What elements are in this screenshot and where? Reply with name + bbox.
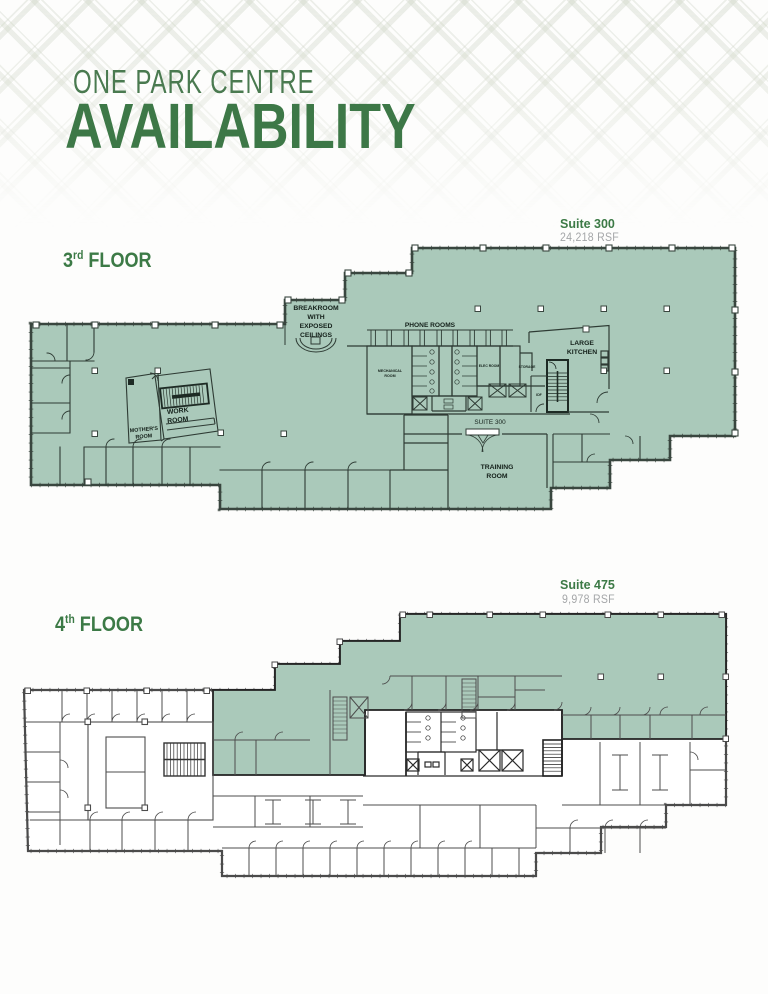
svg-text:LARGE: LARGE — [570, 340, 594, 347]
svg-text:ROOM: ROOM — [486, 473, 507, 480]
svg-text:IDF: IDF — [536, 393, 541, 397]
svg-text:ELEC ROOM: ELEC ROOM — [479, 364, 500, 368]
svg-text:TRAINING: TRAINING — [481, 464, 514, 471]
svg-text:PHONE ROOMS: PHONE ROOMS — [405, 322, 456, 329]
svg-text:WITH: WITH — [307, 314, 324, 321]
svg-text:STORAGE: STORAGE — [519, 365, 536, 369]
svg-text:SUITE 300: SUITE 300 — [474, 419, 506, 426]
svg-text:EXPOSED: EXPOSED — [300, 323, 333, 330]
svg-text:MECHANICAL: MECHANICAL — [378, 369, 403, 373]
svg-text:CEILINGS: CEILINGS — [300, 332, 333, 339]
svg-text:ROOM: ROOM — [384, 374, 395, 378]
svg-text:KITCHEN: KITCHEN — [567, 349, 597, 356]
svg-text:BREAKROOM: BREAKROOM — [293, 305, 339, 312]
